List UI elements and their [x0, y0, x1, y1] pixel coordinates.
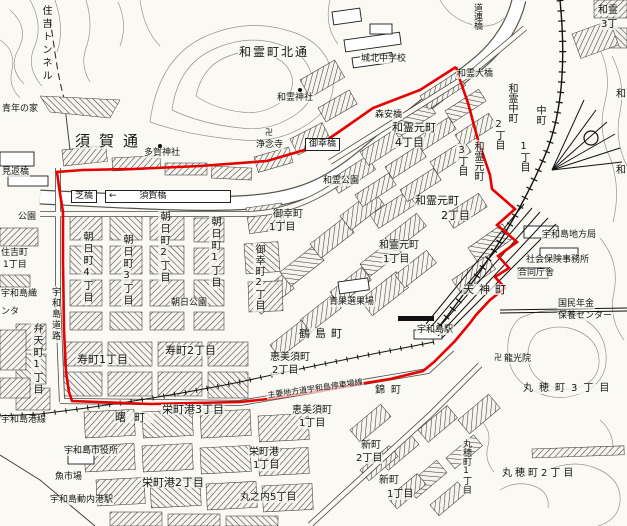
map-label: 宇和島港線: [0, 416, 47, 425]
map-label: 住吉町: [0, 249, 29, 258]
map-label: 和霊: [597, 6, 619, 16]
turntable: [584, 131, 598, 145]
map-label: 御幸町: [272, 210, 304, 220]
map-label: 和: [615, 90, 627, 100]
map-label: 1丁目: [252, 461, 280, 471]
map-label: 和霊神社: [276, 94, 314, 103]
map-label: 芝橋: [71, 190, 97, 203]
map-label: 和霊元町: [414, 195, 460, 206]
map-label: 青年の家: [1, 105, 39, 114]
map-label: 宇和島地方局: [541, 231, 597, 240]
shrine-marker: [298, 88, 302, 92]
map-label: 朝日公園: [170, 299, 208, 308]
map-label: 多賀神社: [143, 149, 181, 158]
map-label: 宇和島駅: [416, 326, 454, 335]
map-label: 丸穂町3丁目: [522, 384, 616, 394]
map-label: 和霊大橋: [456, 70, 494, 79]
map-label: 朝日町4丁目: [81, 230, 91, 305]
map-label: 御幸橋: [305, 138, 340, 151]
station-platform: [398, 316, 434, 321]
map-label: 和霊元町: [391, 122, 437, 133]
map-label: 恵美須町: [269, 353, 311, 363]
map-label: 公園: [17, 213, 37, 222]
map-label: 新町: [360, 441, 382, 451]
map-label: 曙町: [114, 412, 154, 423]
map-label: 4丁目: [394, 137, 425, 148]
map-label: ← 須賀橋: [105, 190, 231, 203]
map-label: 森安橋: [374, 111, 403, 120]
map-label: 恵美須町: [291, 406, 333, 416]
map-label: 弁天町1丁目: [31, 322, 41, 397]
map-label: 青果選果場: [328, 298, 375, 307]
map-label: 鶴島町: [298, 328, 348, 339]
map-label: 住吉トンネル: [40, 4, 50, 84]
map-label: 宇和島動内港駅: [49, 496, 114, 505]
map-label: 1丁目: [298, 419, 326, 429]
map-label: 栄町港2丁目: [141, 477, 205, 488]
map-label: 丸之内5丁目: [239, 493, 297, 503]
map-label: 和霊公園: [322, 177, 360, 186]
map-label: 2丁目: [440, 210, 471, 221]
map-label: 中町: [534, 104, 544, 126]
map-label: 2丁目: [355, 454, 383, 464]
map-label: 2丁目: [493, 118, 503, 151]
shoreline: [0, 455, 95, 526]
map-label: 寿町2丁目: [164, 345, 217, 356]
map-label: 道連橋: [472, 2, 481, 31]
map-label: 3丁: [600, 20, 618, 30]
map-label: 和: [615, 166, 627, 176]
map-label: 朝日町3丁目: [121, 233, 131, 308]
map-label: 栄町港3丁目: [161, 404, 225, 415]
map-label: 3丁目: [456, 144, 466, 177]
map-label: 卍: [493, 354, 503, 362]
map-label: 新町: [378, 476, 400, 486]
map-label: 保養センター: [557, 312, 613, 321]
map-label: 見返橋: [1, 168, 30, 177]
map-label: 1丁目: [268, 223, 296, 233]
cliff-hatching: [40, 96, 120, 118]
map-label: 1丁目: [382, 255, 410, 265]
map-label: 国民年金: [557, 300, 595, 309]
map-label: 須賀通: [74, 134, 148, 149]
map-label: 朝日町2丁目: [158, 210, 168, 285]
map-label: 魚市場: [54, 473, 83, 482]
map-label: ンタ: [0, 308, 20, 317]
map-label: 錦町: [374, 386, 408, 396]
map-label: 1丁目: [2, 261, 28, 270]
map-label: 合同庁舎: [517, 269, 555, 278]
map-label: 和霊町北通: [238, 46, 310, 58]
map-label: 1丁目: [518, 140, 528, 173]
map-label: 宇和島市役所: [63, 447, 119, 456]
map-label: 天神町: [462, 284, 512, 295]
map-label: 城北中学校: [360, 55, 407, 64]
map-label: 宇和島道路: [50, 286, 59, 343]
map-label: 栄町港: [248, 448, 280, 458]
map-label: 御幸町2丁目: [253, 243, 263, 312]
map-label: 宇和島織: [0, 290, 38, 299]
map-label: 社会保険事務所: [525, 256, 590, 265]
map-label: 龍光院: [503, 355, 532, 364]
map-label: 寿町1丁目: [76, 354, 129, 365]
map-label: 朝日町1丁目: [209, 215, 219, 290]
map-label: 卍: [264, 129, 274, 137]
map-label: 丸穂町2丁目: [501, 469, 577, 479]
city-map[interactable]: 住吉トンネル青年の家見返橋須賀通多賀神社浄念寺卍和霊町北通和霊神社城北中学校和霊…: [0, 0, 627, 526]
map-label: 1丁目: [386, 490, 414, 500]
map-label: 和霊元町: [472, 140, 482, 182]
map-label: 和霊中町: [506, 82, 516, 124]
map-label: 浄念寺: [255, 141, 284, 150]
map-label: 2丁目: [271, 366, 299, 376]
map-label: 和霊元町: [378, 241, 420, 251]
map-label: 丸穂町1丁目: [461, 438, 470, 495]
